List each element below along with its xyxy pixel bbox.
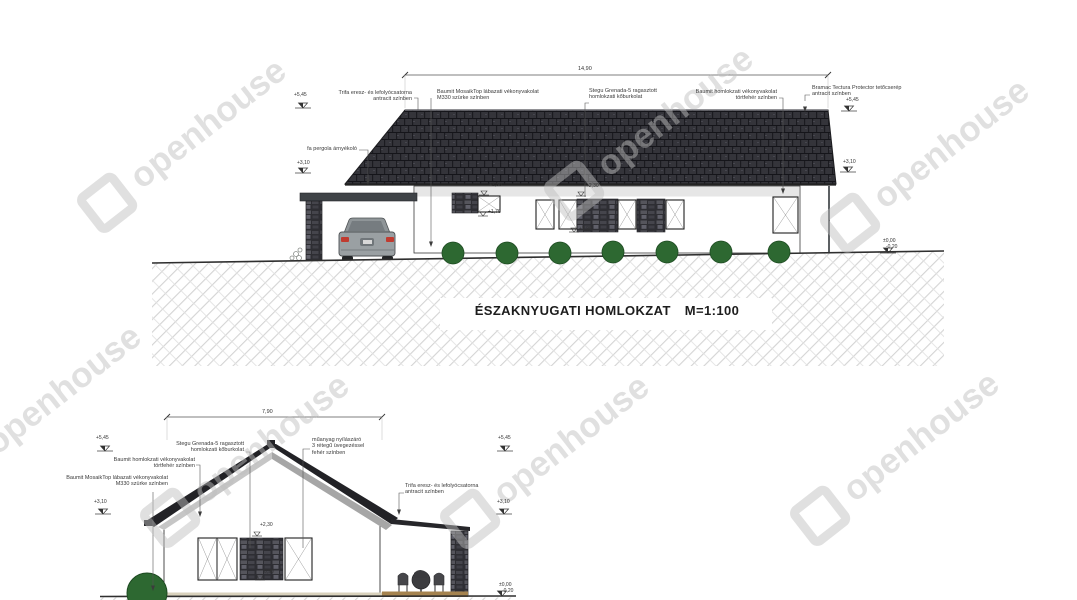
bush [768, 241, 790, 263]
level-flag-icon [496, 509, 512, 514]
annotation-window: műanyag nyílászáró 3 rétegű üvegezéssel … [312, 437, 364, 456]
level-label: +5,45 [96, 436, 109, 442]
annotation-roof-tile: Bramac Tectura Protector tetőcserép antr… [812, 85, 901, 98]
terrace-roof [391, 519, 470, 531]
gutter-end [144, 520, 153, 526]
annotation-gutter: Trifa eresz- és lefolyócsatorna antracit… [339, 90, 412, 103]
annotation-facade-render: Baumit homlokzati vékonyvakolat törtfehé… [114, 457, 195, 470]
bush [442, 242, 464, 264]
title-text: ÉSZAKNYUGATI HOMLOKZAT [475, 303, 671, 318]
level-label: +2,30 [260, 523, 273, 529]
level-label: +3,10 [297, 161, 310, 167]
level-flag-icon [97, 446, 113, 451]
level-flag-icon [95, 509, 111, 514]
bush [496, 242, 518, 264]
window [285, 538, 312, 580]
carport-pillar [306, 201, 322, 262]
chair [398, 573, 408, 585]
level-label: +5,45 [498, 436, 511, 442]
window-tall [773, 197, 798, 233]
top-elevation [152, 72, 944, 366]
plant [290, 248, 302, 261]
annotation-facade-render: Baumit homlokzati vékonyvakolat törtfehé… [696, 89, 777, 102]
drawing-title: ÉSZAKNYUGATI HOMLOKZAT M=1:100 [437, 303, 777, 318]
roof-top-elevation [345, 110, 836, 185]
license-plate [363, 240, 372, 244]
annotation-plinth-render: Baumit MosaikTop lábazati vékonyvakolat … [66, 475, 168, 488]
chair [434, 573, 444, 585]
bottom-elevation [95, 414, 516, 600]
level-label: 0,90 [264, 570, 274, 576]
bush [656, 241, 678, 263]
window [536, 200, 554, 229]
total-dimension: 7,90 [262, 409, 273, 415]
level-flag-icon [497, 446, 513, 451]
level-label: +5,45 [294, 93, 307, 99]
taillight [341, 237, 349, 242]
level-label: -0,20 [502, 589, 513, 595]
level-flag-icon [840, 167, 856, 172]
terrace [398, 531, 468, 595]
window [618, 200, 636, 229]
level-label: +1,90 [579, 227, 592, 233]
window-double [198, 538, 237, 580]
level-label: +5,45 [846, 98, 859, 104]
window [666, 200, 684, 229]
level-label: -0,20 [886, 245, 897, 251]
tree [127, 573, 167, 600]
stone-cladding [452, 193, 478, 213]
window [559, 200, 577, 229]
taillight [386, 237, 394, 242]
stone-cladding [240, 538, 283, 580]
level-flag-icon [295, 103, 311, 108]
level-label: +3,10 [843, 160, 856, 166]
annotation-stone-cladding: Stegu Grenada-5 ragasztott homlokzati kő… [176, 441, 244, 454]
carport [290, 193, 417, 263]
annotation-pergola: fa pergola árnyékoló [307, 146, 357, 152]
annotation-plinth-render: Baumit MosaikTop lábazati vékonyvakolat … [437, 89, 539, 102]
level-label: +2,30 [586, 184, 599, 190]
level-label: +1,70 [488, 210, 501, 216]
level-flag-icon [295, 168, 311, 173]
bush [710, 241, 732, 263]
annotation-gutter: Trifa eresz- és lefolyócsatorna antracit… [405, 483, 478, 496]
chair [414, 570, 427, 578]
title-scale: M=1:100 [685, 303, 739, 318]
bush [602, 241, 624, 263]
level-label: +2,50 [489, 183, 502, 189]
terrace-furniture [398, 570, 444, 595]
level-label: +3,10 [497, 500, 510, 506]
level-flag-icon [841, 106, 857, 111]
annotation-stone-cladding: Stegu Grenada-5 ragasztott homlokzati kő… [589, 88, 657, 101]
terrace-pillar [451, 531, 468, 595]
car [339, 218, 395, 263]
stone-cladding [637, 199, 665, 232]
architectural-drawing-sheet: openhouse openhouse openhouse openhouse … [0, 0, 1077, 600]
carport-beam [300, 193, 417, 201]
level-label: +3,10 [94, 500, 107, 506]
bush [549, 242, 571, 264]
total-dimension: 14,90 [578, 66, 592, 72]
leader-arrow [397, 510, 401, 516]
windows-and-stone-bottom [198, 538, 312, 580]
